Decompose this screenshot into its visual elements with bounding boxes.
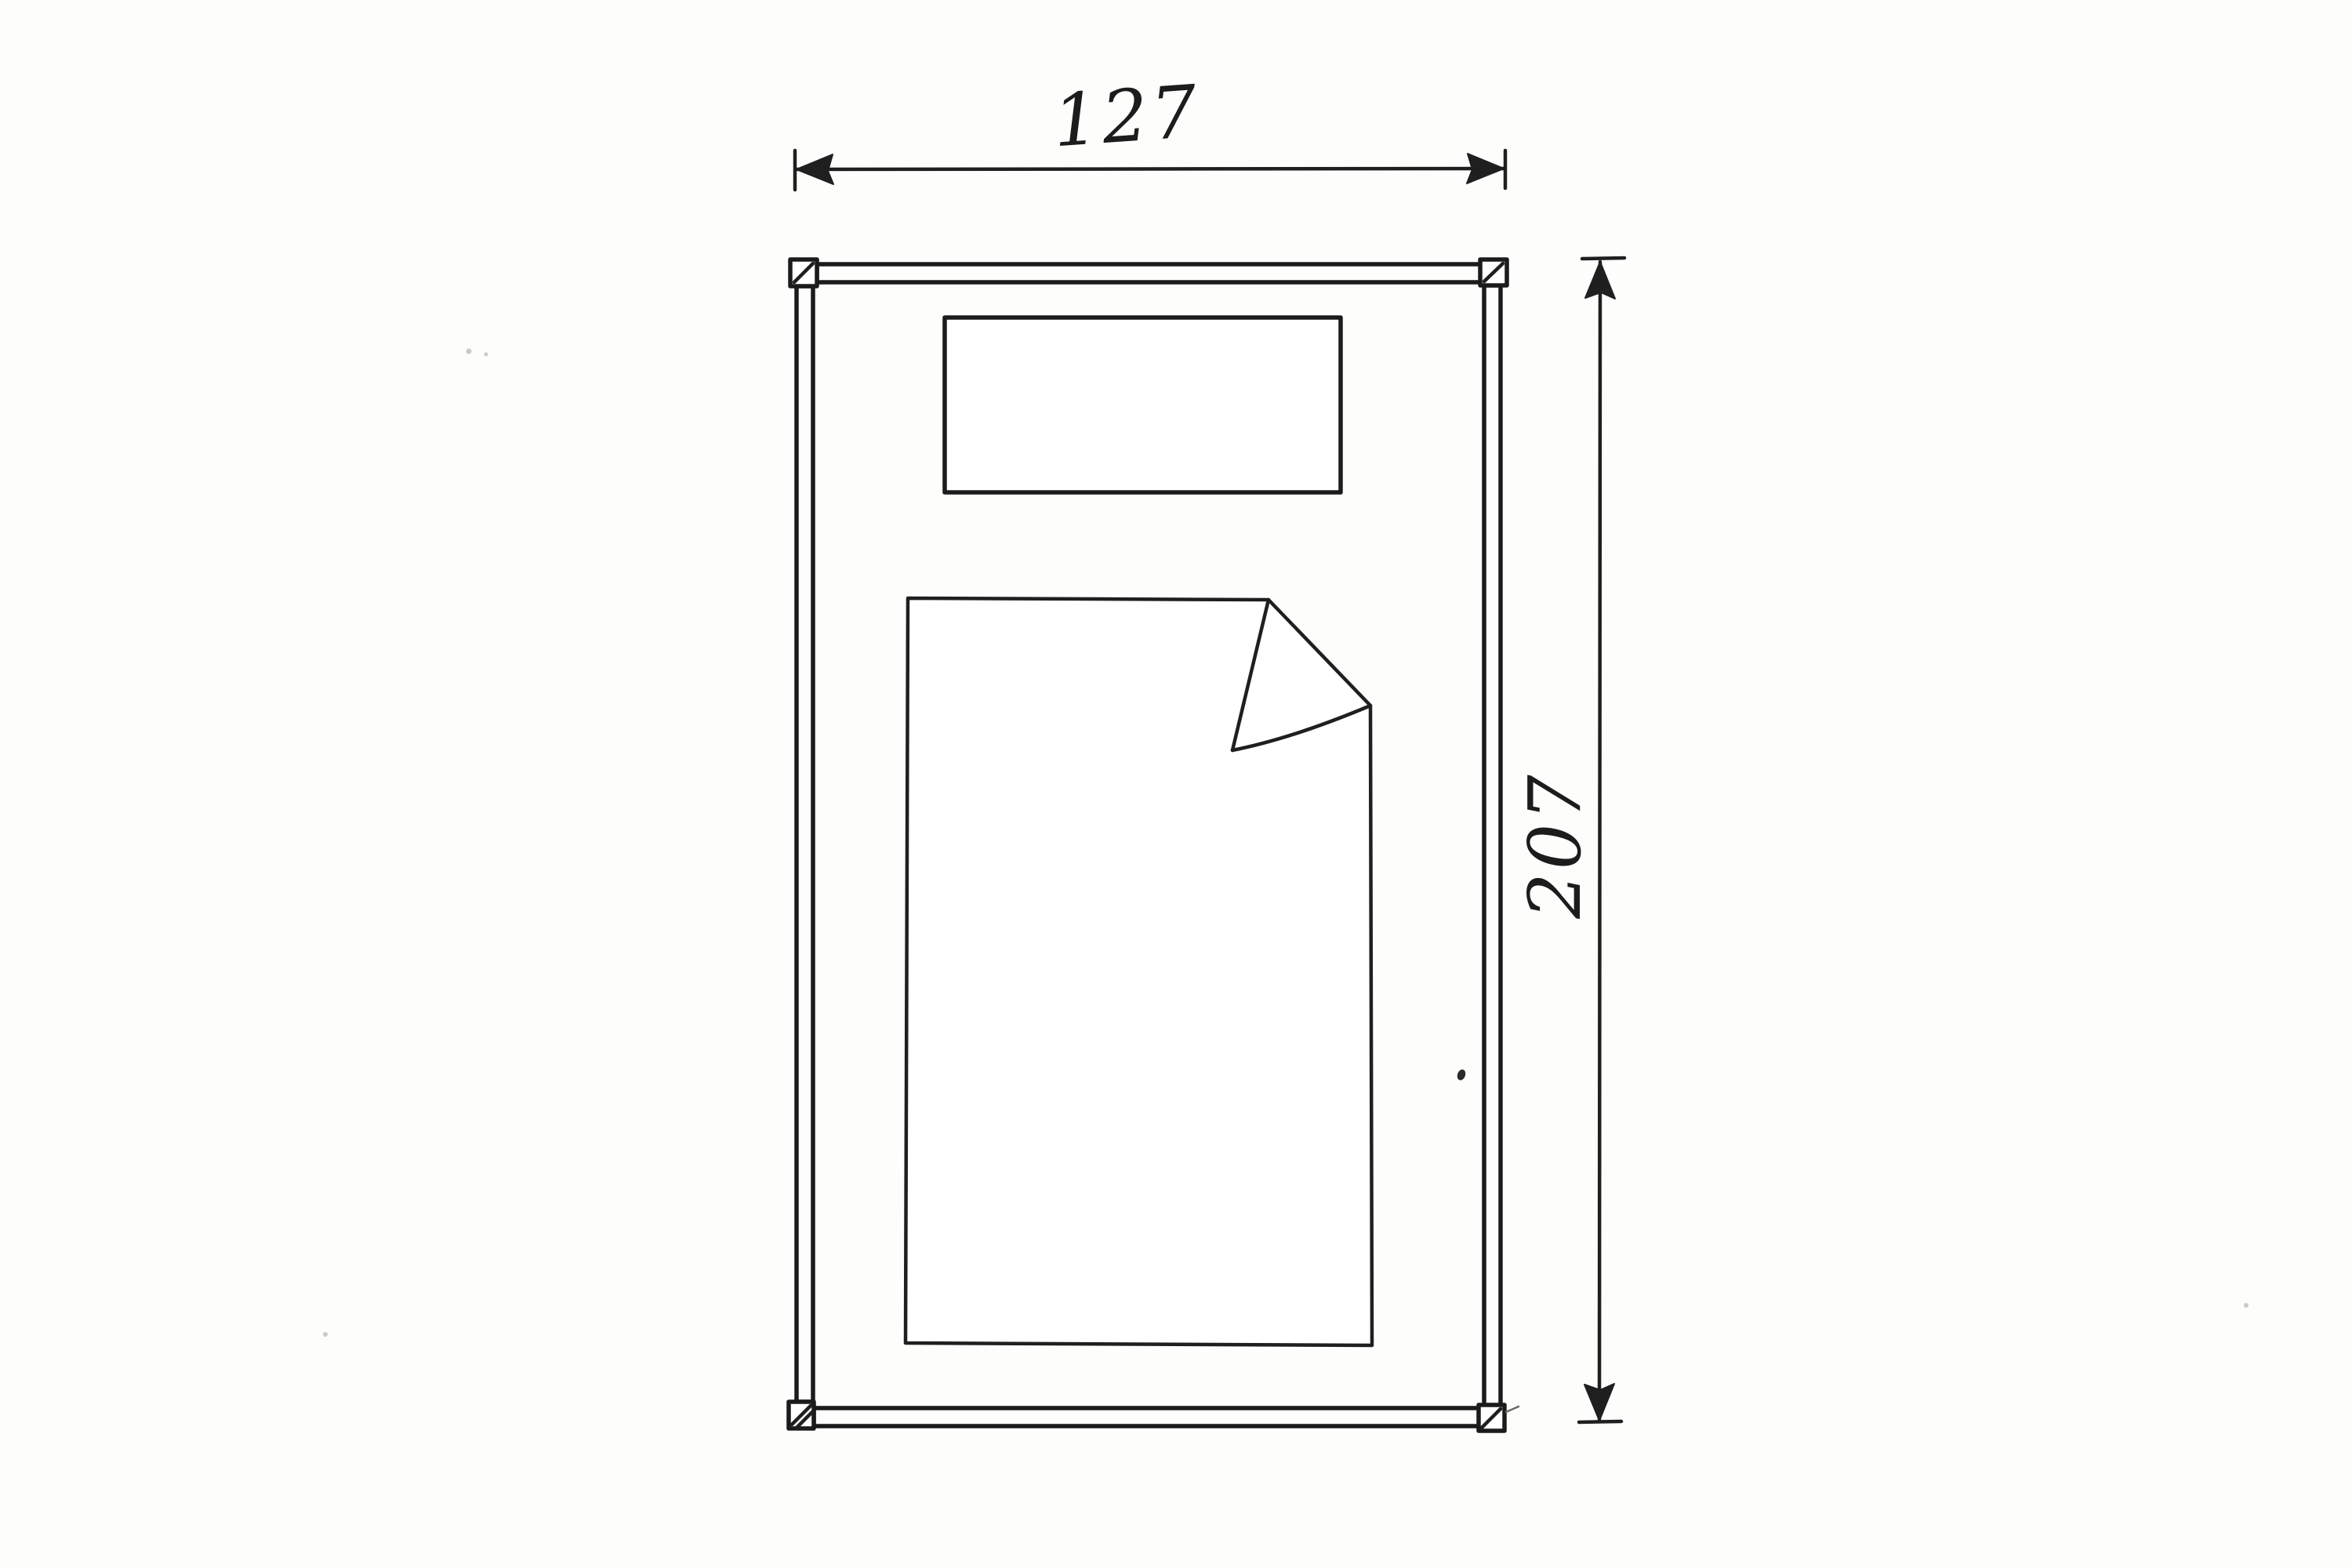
height-dimension-arrow-down bbox=[1584, 1384, 1614, 1421]
scanned-sketch-page: 127 207 bbox=[0, 0, 2352, 1568]
width-dimension: 127 bbox=[795, 70, 1505, 190]
height-dimension-arrow-up bbox=[1585, 262, 1615, 299]
duvet-outline bbox=[906, 598, 1372, 1345]
width-dimension-arrow-left bbox=[797, 154, 833, 184]
frame-bottom-rail bbox=[814, 1408, 1479, 1426]
height-dimension-line bbox=[1599, 262, 1600, 1421]
scan-speck bbox=[485, 353, 488, 357]
frame-corner-post-bottom-left bbox=[789, 1402, 814, 1428]
height-dimension-label: 207 bbox=[1513, 771, 1597, 920]
scan-speck bbox=[466, 349, 472, 354]
scan-speck bbox=[323, 1332, 328, 1337]
duvet bbox=[906, 598, 1372, 1345]
frame-corner-post-top-left bbox=[790, 260, 817, 286]
height-dimension-tick-bottom bbox=[1579, 1421, 1621, 1422]
width-dimension-line bbox=[797, 169, 1504, 169]
height-dimension: 207 bbox=[1513, 258, 1624, 1422]
frame-right-rail bbox=[1484, 285, 1501, 1406]
pillow bbox=[945, 318, 1341, 492]
scan-speck bbox=[2244, 1303, 2249, 1308]
frame-top-rail bbox=[817, 264, 1482, 282]
stray-pen-mark bbox=[1506, 1406, 1519, 1412]
frame-corner-post-bottom-right bbox=[1479, 1405, 1519, 1431]
scan-speck bbox=[1456, 1069, 1467, 1082]
height-dimension-tick-top bbox=[1582, 258, 1624, 259]
width-dimension-arrow-right bbox=[1467, 154, 1504, 183]
width-dimension-label: 127 bbox=[1051, 70, 1203, 164]
frame-corner-post-top-right bbox=[1480, 260, 1507, 285]
bed-plan-drawing: 127 207 bbox=[0, 0, 2352, 1568]
frame-left-rail bbox=[797, 286, 813, 1402]
